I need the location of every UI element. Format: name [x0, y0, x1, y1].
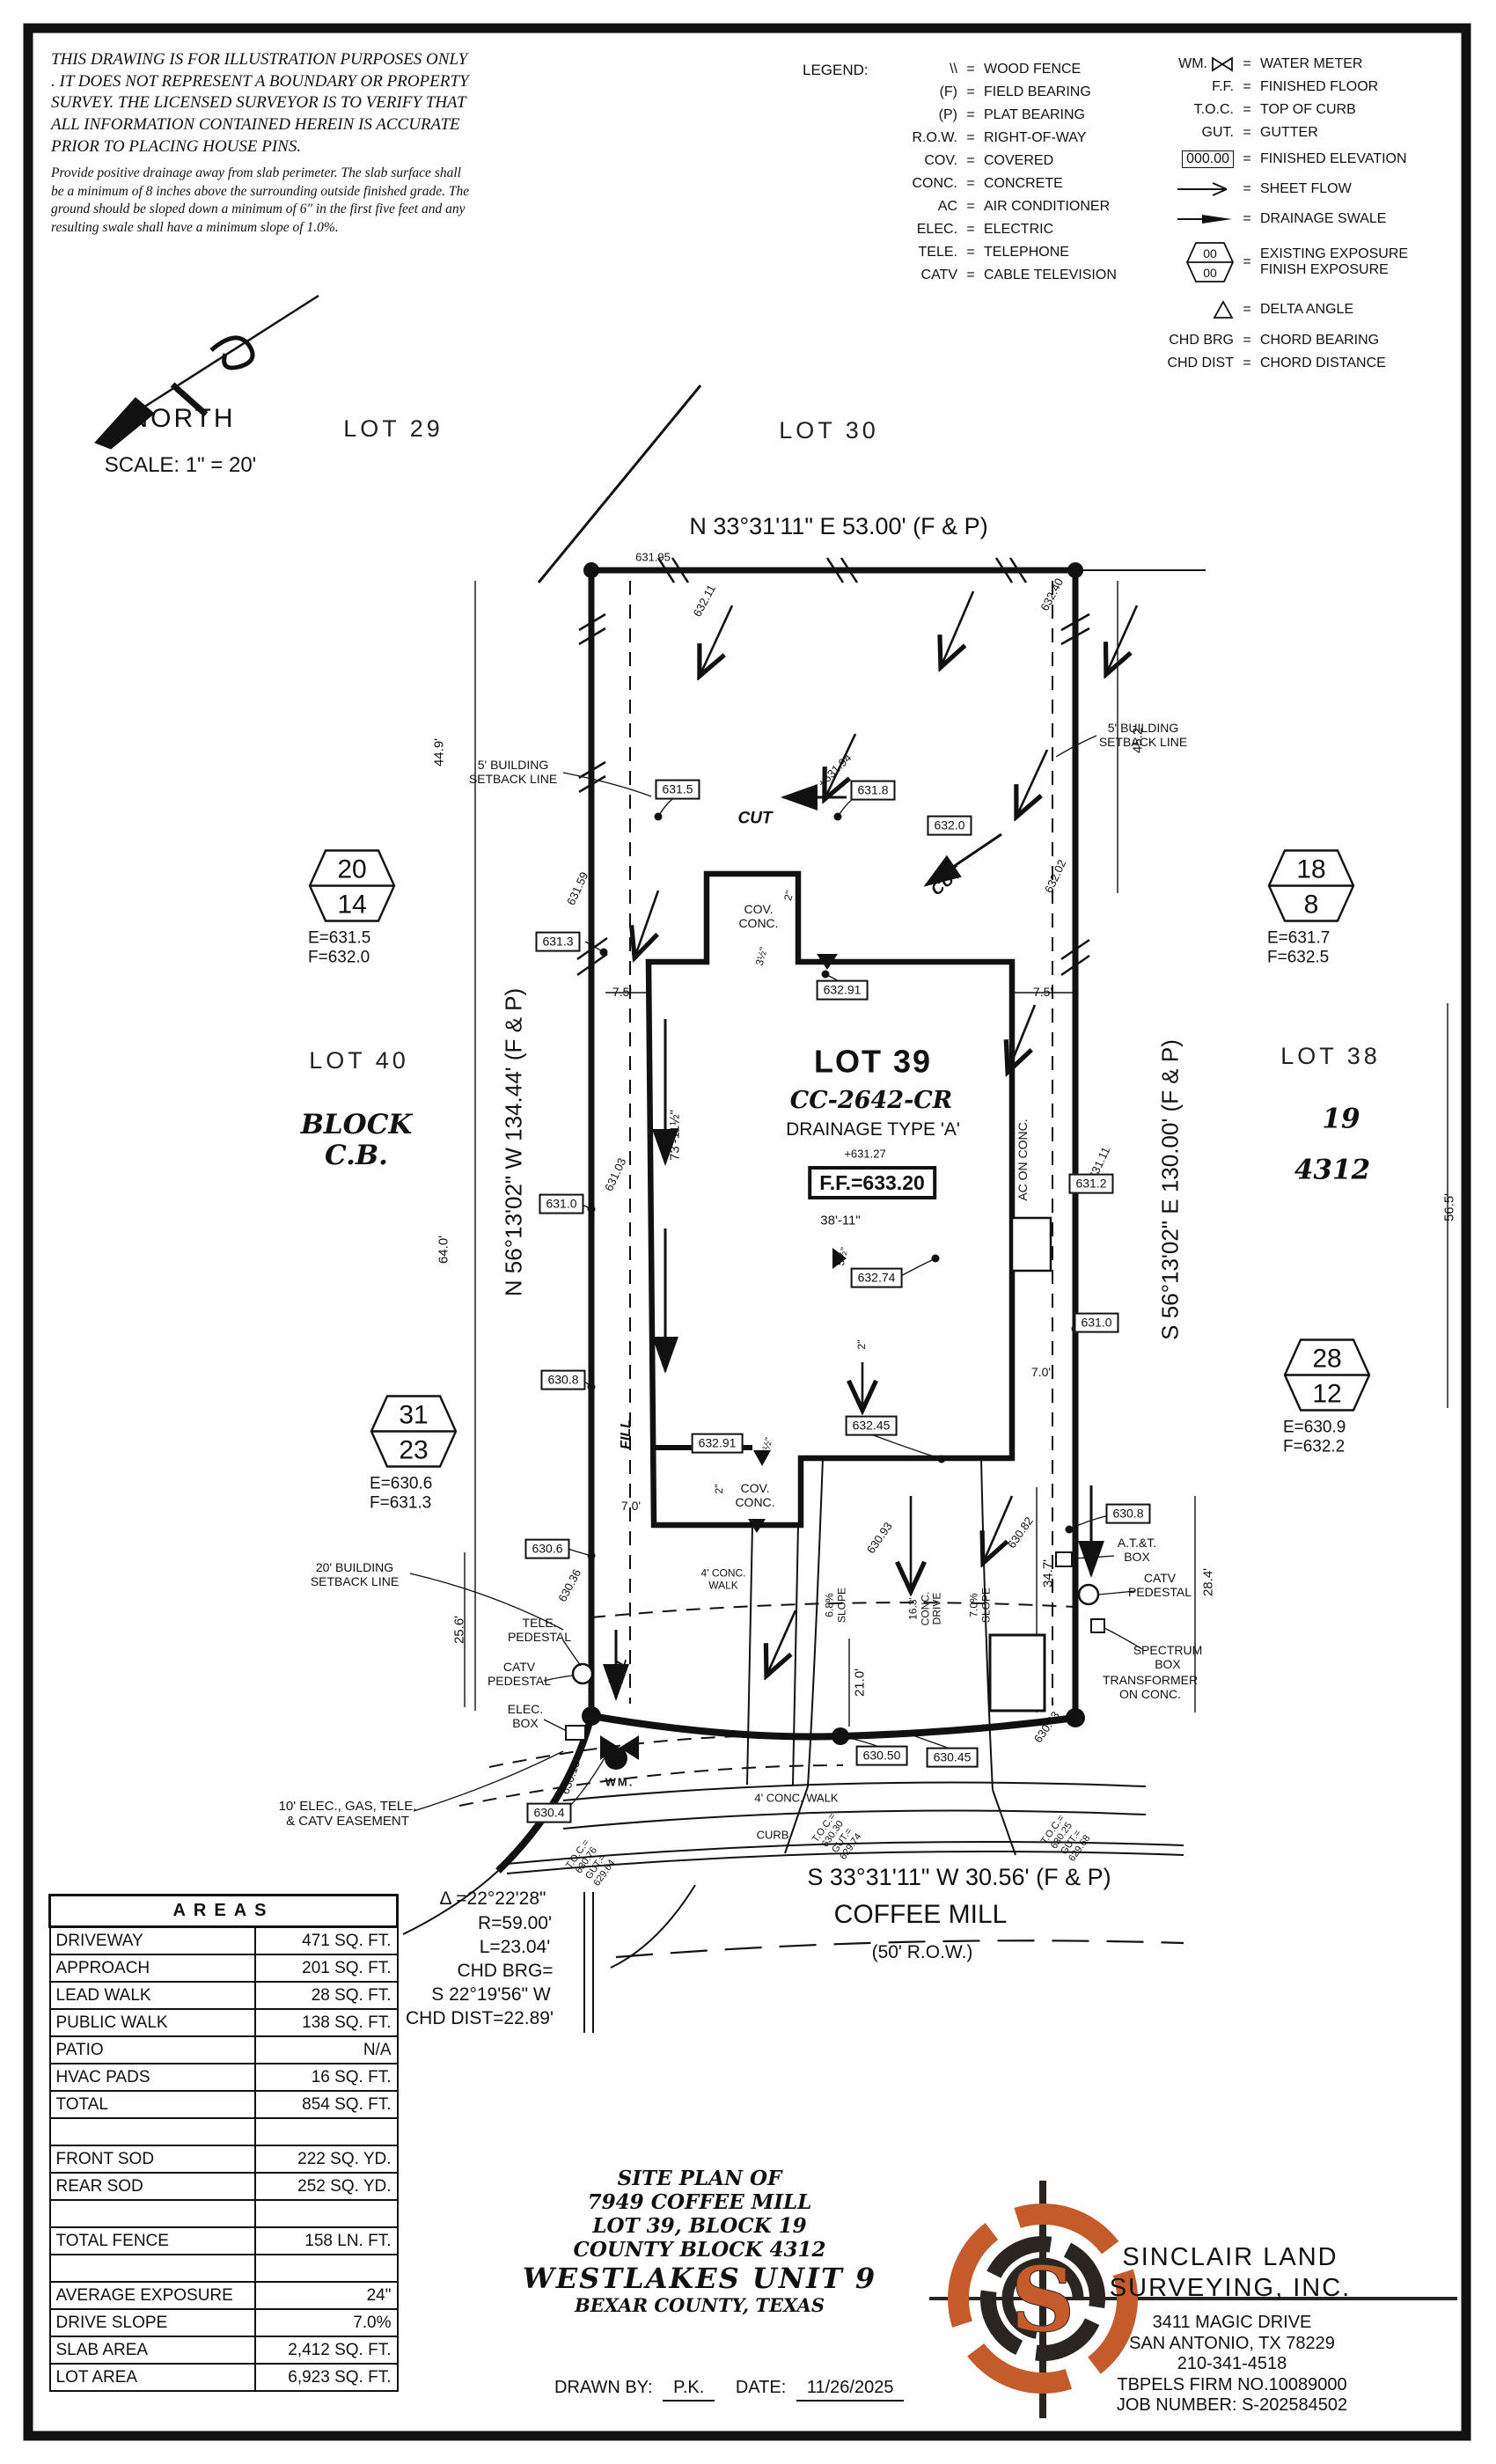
equals-sign: = [957, 62, 984, 77]
lot-division-line [539, 385, 700, 583]
plan-label: 7.5' [1033, 986, 1052, 1000]
legend-symbol: CHD DIST [1130, 356, 1234, 371]
areas-table-row: SLAB AREA2,412 SQ. FT. [50, 2336, 398, 2364]
legend-symbol: GUT. [1130, 125, 1234, 141]
spectrum-box-icon [1091, 1619, 1104, 1632]
legend-symbol: AC [866, 199, 957, 215]
areas-table-row [50, 2200, 398, 2227]
legend-label: COVERED [984, 153, 1053, 169]
plan-label: CHD BRG= [457, 1961, 553, 1982]
areas-table-row: TOTAL854 SQ. FT. [50, 2091, 398, 2118]
disclaimer-paragraph: THIS DRAWING IS FOR ILLUSTRATION PURPOSE… [51, 49, 472, 158]
title-line-1: SITE PLAN OF [523, 2167, 876, 2190]
plan-label: CHD DIST=22.89' [406, 2008, 554, 2029]
ac-pad [1012, 1218, 1051, 1271]
plan-label: 25.6' [453, 1616, 468, 1644]
exposure-icon: 0000 [1130, 242, 1234, 282]
plan-label: 4312 [1294, 1155, 1370, 1185]
plan-label: S 56°13'02" E 130.00' (F & P) [1157, 1039, 1183, 1340]
plan-label: 34.7' [1042, 1559, 1057, 1588]
title-subdivision: WESTLAKES UNIT 9 [523, 2262, 876, 2295]
svg-text:28: 28 [1312, 1345, 1341, 1374]
legend-symbol: TELE. [866, 245, 957, 260]
area-label [50, 2118, 255, 2145]
plan-label: 2" [856, 1340, 869, 1350]
area-value: 222 SQ. YD. [255, 2145, 398, 2173]
equals-sign: = [957, 84, 984, 100]
legend-left-column: \\=WOOD FENCE(F)=FIELD BEARING(P)=PLAT B… [866, 58, 1117, 287]
legend-row: T.O.C.=TOP OF CURB [1130, 99, 1408, 121]
area-label: TOTAL FENCE [50, 2227, 255, 2255]
plan-label: FILL [619, 1419, 634, 1449]
house-outline [649, 874, 1012, 1525]
plan-label: 28.4' [1202, 1568, 1217, 1596]
area-label: SLAB AREA [50, 2336, 255, 2364]
area-value [255, 2118, 398, 2145]
plan-label: 21.0' [854, 1668, 869, 1697]
exposure-elevations: E=631.7F=632.5 [1267, 929, 1355, 968]
legend-label: EXISTING EXPOSURE FINISH EXPOSURE [1260, 246, 1408, 279]
exposure-elevations: E=630.6F=631.3 [370, 1475, 458, 1514]
area-value: 854 SQ. FT. [255, 2091, 398, 2118]
equals-sign: = [957, 268, 984, 283]
plan-label: 631.8 [850, 781, 895, 801]
legend-row: \\=WOOD FENCE [866, 58, 1117, 81]
plan-label: 631.3 [535, 932, 580, 952]
title-county: BEXAR COUNTY, TEXAS [523, 2294, 876, 2316]
svg-text:20: 20 [337, 855, 366, 884]
area-value: N/A [255, 2036, 398, 2064]
plan-label: 5' BUILDING SETBACK LINE [469, 759, 557, 787]
exposure-elevations: E=631.5F=632.0 [308, 929, 396, 968]
plan-label: 630.8 [1105, 1504, 1150, 1524]
legend-label: AIR CONDITIONER [984, 199, 1110, 215]
areas-table-row [50, 2255, 398, 2282]
area-label [50, 2255, 255, 2282]
area-value [255, 2200, 398, 2227]
plan-label: A.T.&T. BOX [1118, 1536, 1156, 1565]
svg-text:12: 12 [1312, 1380, 1341, 1409]
disclaimer-note: THIS DRAWING IS FOR ILLUSTRATION PURPOSE… [51, 49, 472, 237]
plan-label: COFFEE MILL [834, 1900, 1008, 1930]
plan-label: 632.91 [817, 980, 869, 1001]
legend-symbol: T.O.C. [1130, 102, 1234, 118]
legend-label: CABLE TELEVISION [984, 268, 1117, 283]
area-value: 252 SQ. YD. [255, 2173, 398, 2200]
area-label: FRONT SOD [50, 2145, 255, 2173]
plan-label: 631.0 [539, 1194, 583, 1214]
plan-label: 6.8% SLOPE [824, 1588, 847, 1623]
north-label: NORTH [128, 404, 235, 434]
elec-box-icon [566, 1726, 585, 1740]
legend-symbol: ELEC. [866, 222, 957, 238]
equals-sign: = [1234, 333, 1260, 348]
drawn-by-row: DRAWN BY: P.K. DATE: 11/26/2025 [554, 2378, 920, 2402]
plan-label: Δ =22°22'28" [440, 1888, 546, 1910]
legend-symbol: (F) [866, 84, 957, 100]
plan-label: 631.95 [635, 552, 671, 565]
plan-label: 632.91 [692, 1434, 744, 1454]
exposure-symbol: 2812E=630.9F=632.2 [1283, 1338, 1371, 1457]
plan-label: 73'-11½" [669, 1110, 684, 1161]
legend-label: CHORD BEARING [1260, 333, 1379, 348]
legend-symbol: CATV [866, 268, 957, 283]
legend-row: =DELTA ANGLE [1130, 290, 1408, 329]
area-label: LEAD WALK [50, 1982, 255, 2009]
legend-symbol: (P) [866, 107, 957, 123]
legend-row: F.F.=FINISHED FLOOR [1130, 76, 1408, 99]
company-details: 3411 MAGIC DRIVE SAN ANTONIO, TX 78229 2… [1117, 2313, 1347, 2416]
plan-label: 19 [1322, 1104, 1360, 1134]
plan-label: F.F.=633.20 [808, 1166, 936, 1199]
plan-label: 632.74 [851, 1268, 903, 1288]
areas-table-row: APPROACH201 SQ. FT. [50, 1954, 398, 1982]
drawn-by-value: P.K. [663, 2378, 715, 2402]
areas-table-row: HVAC PADS16 SQ. FT. [50, 2064, 398, 2091]
plan-label: N 56°13'02" W 134.44' (F & P) [501, 988, 526, 1296]
legend-row: GUT.=GUTTER [1130, 121, 1408, 144]
drawn-by-label: DRAWN BY: [554, 2378, 653, 2397]
plan-label: 630.50 [856, 1746, 908, 1766]
equals-sign: = [957, 245, 984, 260]
scale-label: SCALE: 1" = 20' [105, 453, 257, 478]
company-name: SINCLAIR LAND SURVEYING, INC. [1110, 2242, 1351, 2304]
legend-row: 000.00=FINISHED ELEVATION [1130, 144, 1408, 174]
equals-sign: = [1234, 102, 1260, 118]
plan-label: WM. [605, 1777, 634, 1790]
plan-label: LOT 39 [814, 1045, 932, 1081]
plan-label: 5' BUILDING SETBACK LINE [1099, 722, 1187, 750]
legend-label: DRAINAGE SWALE [1260, 211, 1386, 227]
legend-symbol: CONC. [866, 176, 957, 192]
area-label: DRIVEWAY [50, 1927, 255, 1955]
plan-label: LOT 29 [343, 415, 444, 443]
legend-row: CHD DIST=CHORD DISTANCE [1130, 352, 1408, 375]
legend-label: RIGHT-OF-WAY [984, 130, 1086, 146]
exposure-symbol: 188E=631.7F=632.5 [1267, 849, 1355, 968]
plan-label: 64.0' [437, 1236, 452, 1264]
equals-sign: = [957, 107, 984, 123]
date-label: DATE: [736, 2378, 786, 2397]
equals-sign: = [957, 130, 984, 146]
area-label: DRIVE SLOPE [50, 2309, 255, 2336]
plan-label: 10' ELEC., GAS, TELE. & CATV EASEMENT [279, 1800, 417, 1830]
plan-label: (50' R.O.W.) [872, 1942, 973, 1963]
plan-label: 4' CONC. WALK [754, 1793, 838, 1806]
equals-sign: = [1234, 181, 1260, 197]
plan-label: 7.5' [612, 986, 632, 1000]
plan-label: 631.2 [1068, 1174, 1113, 1194]
plan-label: 7.0' [621, 1500, 641, 1514]
legend-label: CONCRETE [984, 176, 1063, 192]
areas-table: AREAS DRIVEWAY471 SQ. FT.APPROACH201 SQ.… [48, 1894, 399, 2392]
equals-sign: = [1234, 151, 1260, 167]
plan-label: S 22°19'56" W [431, 1984, 550, 2006]
exposure-symbol: 2014E=631.5F=632.0 [308, 849, 396, 968]
date-value: 11/26/2025 [796, 2378, 905, 2402]
plan-label: LOT 40 [309, 1047, 409, 1074]
plan-label: COV. CONC. [735, 1482, 774, 1510]
equals-sign: = [957, 176, 984, 192]
legend-row: COV.=COVERED [866, 150, 1117, 172]
finished-elevation-icon: 000.00 [1130, 150, 1234, 168]
plan-label: 16.3' CONC. DRIVE [908, 1592, 944, 1626]
drainage-swale-icon [1130, 212, 1234, 226]
svg-text:00: 00 [1203, 246, 1217, 260]
area-value [255, 2255, 398, 2282]
legend-label: WATER METER [1260, 56, 1362, 72]
areas-table-row: PATION/A [50, 2036, 398, 2064]
plan-label: BLOCK C.B. [301, 1110, 413, 1171]
equals-sign: = [1234, 254, 1260, 270]
plan-label: +631.27 [844, 1148, 885, 1162]
title-line-2: 7949 COFFEE MILL [523, 2190, 876, 2214]
plan-label: N 33°31'11" E 53.00' (F & P) [689, 513, 987, 540]
catv-pedestal-icon [1079, 1585, 1098, 1604]
area-label: HVAC PADS [50, 2064, 255, 2091]
sheet-flow-icon [1130, 181, 1234, 197]
svg-text:14: 14 [337, 891, 366, 920]
area-value: 471 SQ. FT. [255, 1927, 398, 1955]
area-label [50, 2200, 255, 2227]
area-value: 138 SQ. FT. [255, 2009, 398, 2036]
equals-sign: = [1234, 302, 1260, 318]
equals-sign: = [1234, 56, 1260, 72]
plan-label: CC-2642-CR [790, 1088, 952, 1115]
plan-label: 56.5' [1443, 1193, 1458, 1221]
plan-label: TELE. PEDESTAL [508, 1617, 571, 1645]
areas-table-row: REAR SOD252 SQ. YD. [50, 2173, 398, 2200]
plan-label: 2" [714, 1485, 726, 1494]
legend-row: =SHEET FLOW [1130, 174, 1408, 204]
equals-sign: = [1234, 211, 1260, 227]
title-line-4: COUNTY BLOCK 4312 [523, 2238, 876, 2262]
plan-label: 44.9' [433, 738, 448, 766]
plan-label: CUT [737, 809, 772, 827]
svg-text:00: 00 [1203, 266, 1217, 280]
legend-title: LEGEND: [803, 62, 869, 79]
area-label: AVERAGE EXPOSURE [50, 2282, 255, 2309]
legend-label: FINISHED FLOOR [1260, 79, 1378, 95]
legend-symbol: COV. [866, 153, 957, 169]
area-value: 6,923 SQ. FT. [255, 2364, 398, 2391]
plan-label: 632.0 [927, 816, 972, 836]
legend-row: (P)=PLAT BEARING [866, 104, 1117, 127]
area-value: 158 LN. FT. [255, 2227, 398, 2255]
area-label: PATIO [50, 2036, 255, 2064]
plan-label: 4' CONC. WALK [701, 1567, 746, 1591]
legend-row: CHD BRG=CHORD BEARING [1130, 329, 1408, 352]
survey-sheet: S THIS DRAWING IS FOR ILLUSTRATION PURPO… [0, 0, 1496, 2464]
areas-table-row: DRIVEWAY471 SQ. FT. [50, 1927, 398, 1955]
areas-table-row: DRIVE SLOPE7.0% [50, 2309, 398, 2336]
legend-row: (F)=FIELD BEARING [866, 81, 1117, 104]
equals-sign: = [1234, 125, 1260, 141]
plan-label: CATV PEDESTAL [488, 1661, 551, 1689]
legend-row: CONC.=CONCRETE [866, 172, 1117, 195]
equals-sign: = [1234, 356, 1260, 371]
legend-label: DELTA ANGLE [1260, 302, 1353, 318]
legend-row: TELE.=TELEPHONE [866, 241, 1117, 264]
area-label: TOTAL [50, 2091, 255, 2118]
areas-table-row: PUBLIC WALK138 SQ. FT. [50, 2009, 398, 2036]
areas-table-row: FRONT SOD222 SQ. YD. [50, 2145, 398, 2173]
exposure-symbol: 3123E=630.6F=631.3 [370, 1395, 458, 1514]
plan-label: 631.5 [655, 780, 700, 800]
svg-text:18: 18 [1296, 855, 1325, 884]
areas-table-body: DRIVEWAY471 SQ. FT.APPROACH201 SQ. FT.LE… [50, 1927, 398, 2392]
area-value: 7.0% [255, 2309, 398, 2336]
plan-label: LOT 30 [779, 417, 879, 444]
area-value: 28 SQ. FT. [255, 1982, 398, 2009]
transformer-icon [990, 1635, 1045, 1711]
areas-table-title: AREAS [50, 1896, 398, 1927]
legend-row: ELEC.=ELECTRIC [866, 218, 1117, 241]
svg-text:S: S [1011, 2248, 1074, 2351]
legend-label: GUTTER [1260, 125, 1318, 141]
svg-text:31: 31 [399, 1401, 428, 1430]
plan-label: 7.0' [1031, 1366, 1051, 1380]
area-value: 201 SQ. FT. [255, 1954, 398, 1982]
plan-label: R=59.00' [478, 1913, 552, 1934]
plan-label: 631.0 [1074, 1313, 1118, 1333]
legend-label: ELECTRIC [984, 222, 1053, 238]
plan-label: 630.8 [540, 1370, 585, 1390]
area-label: REAR SOD [50, 2173, 255, 2200]
equals-sign: = [1234, 79, 1260, 95]
delta-icon [1130, 300, 1234, 319]
legend-label: FIELD BEARING [984, 84, 1091, 100]
legend-row: R.O.W.=RIGHT-OF-WAY [866, 127, 1117, 150]
tele-pedestal-icon [573, 1664, 592, 1683]
areas-table-row: AVERAGE EXPOSURE24" [50, 2282, 398, 2309]
plan-label: 630.6 [524, 1539, 569, 1559]
exposure-elevations: E=630.9F=632.2 [1283, 1419, 1371, 1457]
plan-label: 632.45 [846, 1416, 898, 1436]
areas-table-row [50, 2118, 398, 2145]
equals-sign: = [957, 222, 984, 238]
plan-label: LOT 38 [1280, 1043, 1381, 1070]
plan-label: DRAINAGE TYPE 'A' [786, 1119, 960, 1140]
legend-symbol: F.F. [1130, 79, 1234, 95]
plan-label: COV. CONC. [738, 903, 778, 931]
plan-label: TRANSFORMER ON CONC. [1103, 1674, 1198, 1702]
area-value: 2,412 SQ. FT. [255, 2336, 398, 2364]
legend-label: PLAT BEARING [984, 107, 1085, 123]
legend-label: WOOD FENCE [984, 62, 1081, 77]
water-meter-icon: WM. [1130, 56, 1234, 72]
legend-label: TOP OF CURB [1260, 102, 1356, 118]
att-box-icon [1056, 1552, 1072, 1566]
areas-table-row: TOTAL FENCE158 LN. FT. [50, 2227, 398, 2255]
legend-row: 0000=EXISTING EXPOSURE FINISH EXPOSURE [1130, 234, 1408, 290]
svg-text:8: 8 [1304, 891, 1319, 920]
plan-label: CATV PEDESTAL [1128, 1572, 1192, 1600]
title-line-3: LOT 39, BLOCK 19 [523, 2214, 876, 2238]
legend-symbol: \\ [866, 62, 957, 77]
plan-label: S 33°31'11" W 30.56' (F & P) [807, 1864, 1111, 1891]
legend-row: CATV=CABLE TELEVISION [866, 264, 1117, 287]
plan-label: L=23.04' [480, 1937, 551, 1958]
legend-label: SHEET FLOW [1260, 181, 1352, 197]
equals-sign: = [957, 199, 984, 215]
legend-label: TELEPHONE [984, 245, 1069, 260]
areas-table-row: LOT AREA6,923 SQ. FT. [50, 2364, 398, 2391]
area-value: 16 SQ. FT. [255, 2064, 398, 2091]
plan-label: CURB [757, 1830, 789, 1843]
legend-symbol: R.O.W. [866, 130, 957, 146]
areas-table-row: LEAD WALK28 SQ. FT. [50, 1982, 398, 2009]
legend-symbol: CHD BRG [1130, 333, 1234, 348]
area-label: APPROACH [50, 1954, 255, 1982]
area-label: PUBLIC WALK [50, 2009, 255, 2036]
legend-row: WM.=WATER METER [1130, 53, 1408, 76]
plan-label: AC ON CONC. [1016, 1118, 1030, 1200]
plan-label: 20' BUILDING SETBACK LINE [311, 1561, 399, 1589]
plan-label: 38'-11" [820, 1214, 860, 1229]
legend-label: CHORD DISTANCE [1260, 356, 1386, 371]
legend-row: =DRAINAGE SWALE [1130, 204, 1408, 234]
plan-label: 7.0% SLOPE [968, 1588, 992, 1623]
legend-row: AC=AIR CONDITIONER [866, 195, 1117, 218]
legend-label: FINISHED ELEVATION [1260, 151, 1407, 167]
title-block: SITE PLAN OF 7949 COFFEE MILL LOT 39, BL… [523, 2167, 876, 2316]
plan-label: 630.4 [526, 1803, 571, 1823]
plan-label: SPECTRUM BOX [1133, 1644, 1203, 1672]
plan-label: 630.45 [927, 1748, 979, 1768]
equals-sign: = [957, 153, 984, 169]
drainage-note-paragraph: Provide positive drainage away from slab… [51, 165, 472, 237]
area-label: LOT AREA [50, 2364, 255, 2391]
plan-label: ELEC. BOX [508, 1703, 543, 1731]
legend-right-column: WM.=WATER METERF.F.=FINISHED FLOORT.O.C.… [1130, 53, 1408, 375]
svg-text:23: 23 [399, 1436, 428, 1465]
area-value: 24" [255, 2282, 398, 2309]
